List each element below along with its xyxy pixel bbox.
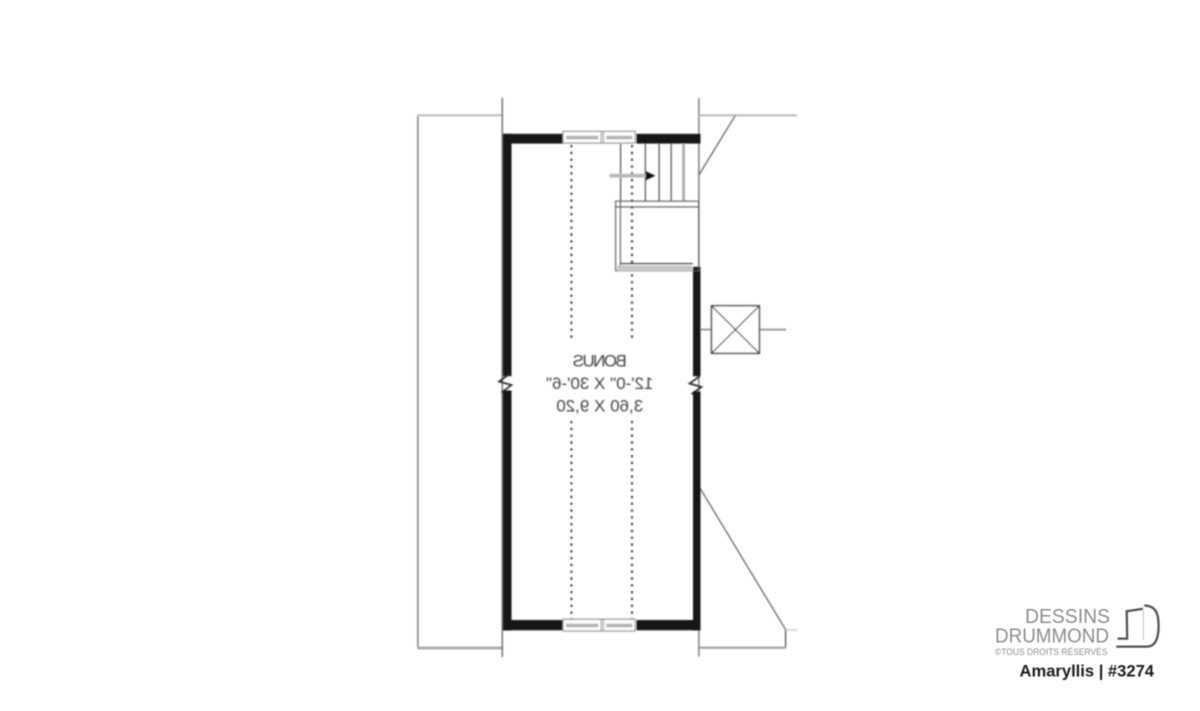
svg-text:BONUS: BONUS [573,351,627,370]
svg-text:3,60 X 9,20: 3,60 X 9,20 [556,396,643,415]
svg-text:Amaryllis | #3274: Amaryllis | #3274 [1020,662,1155,681]
svg-text:12'-0" X 30'-6": 12'-0" X 30'-6" [546,374,653,393]
svg-text:DESSINS: DESSINS [1025,605,1110,628]
svg-text:©TOUS DROITS RÉSERVÉS: ©TOUS DROITS RÉSERVÉS [995,647,1108,657]
svg-text:DRUMMOND: DRUMMOND [995,625,1109,647]
